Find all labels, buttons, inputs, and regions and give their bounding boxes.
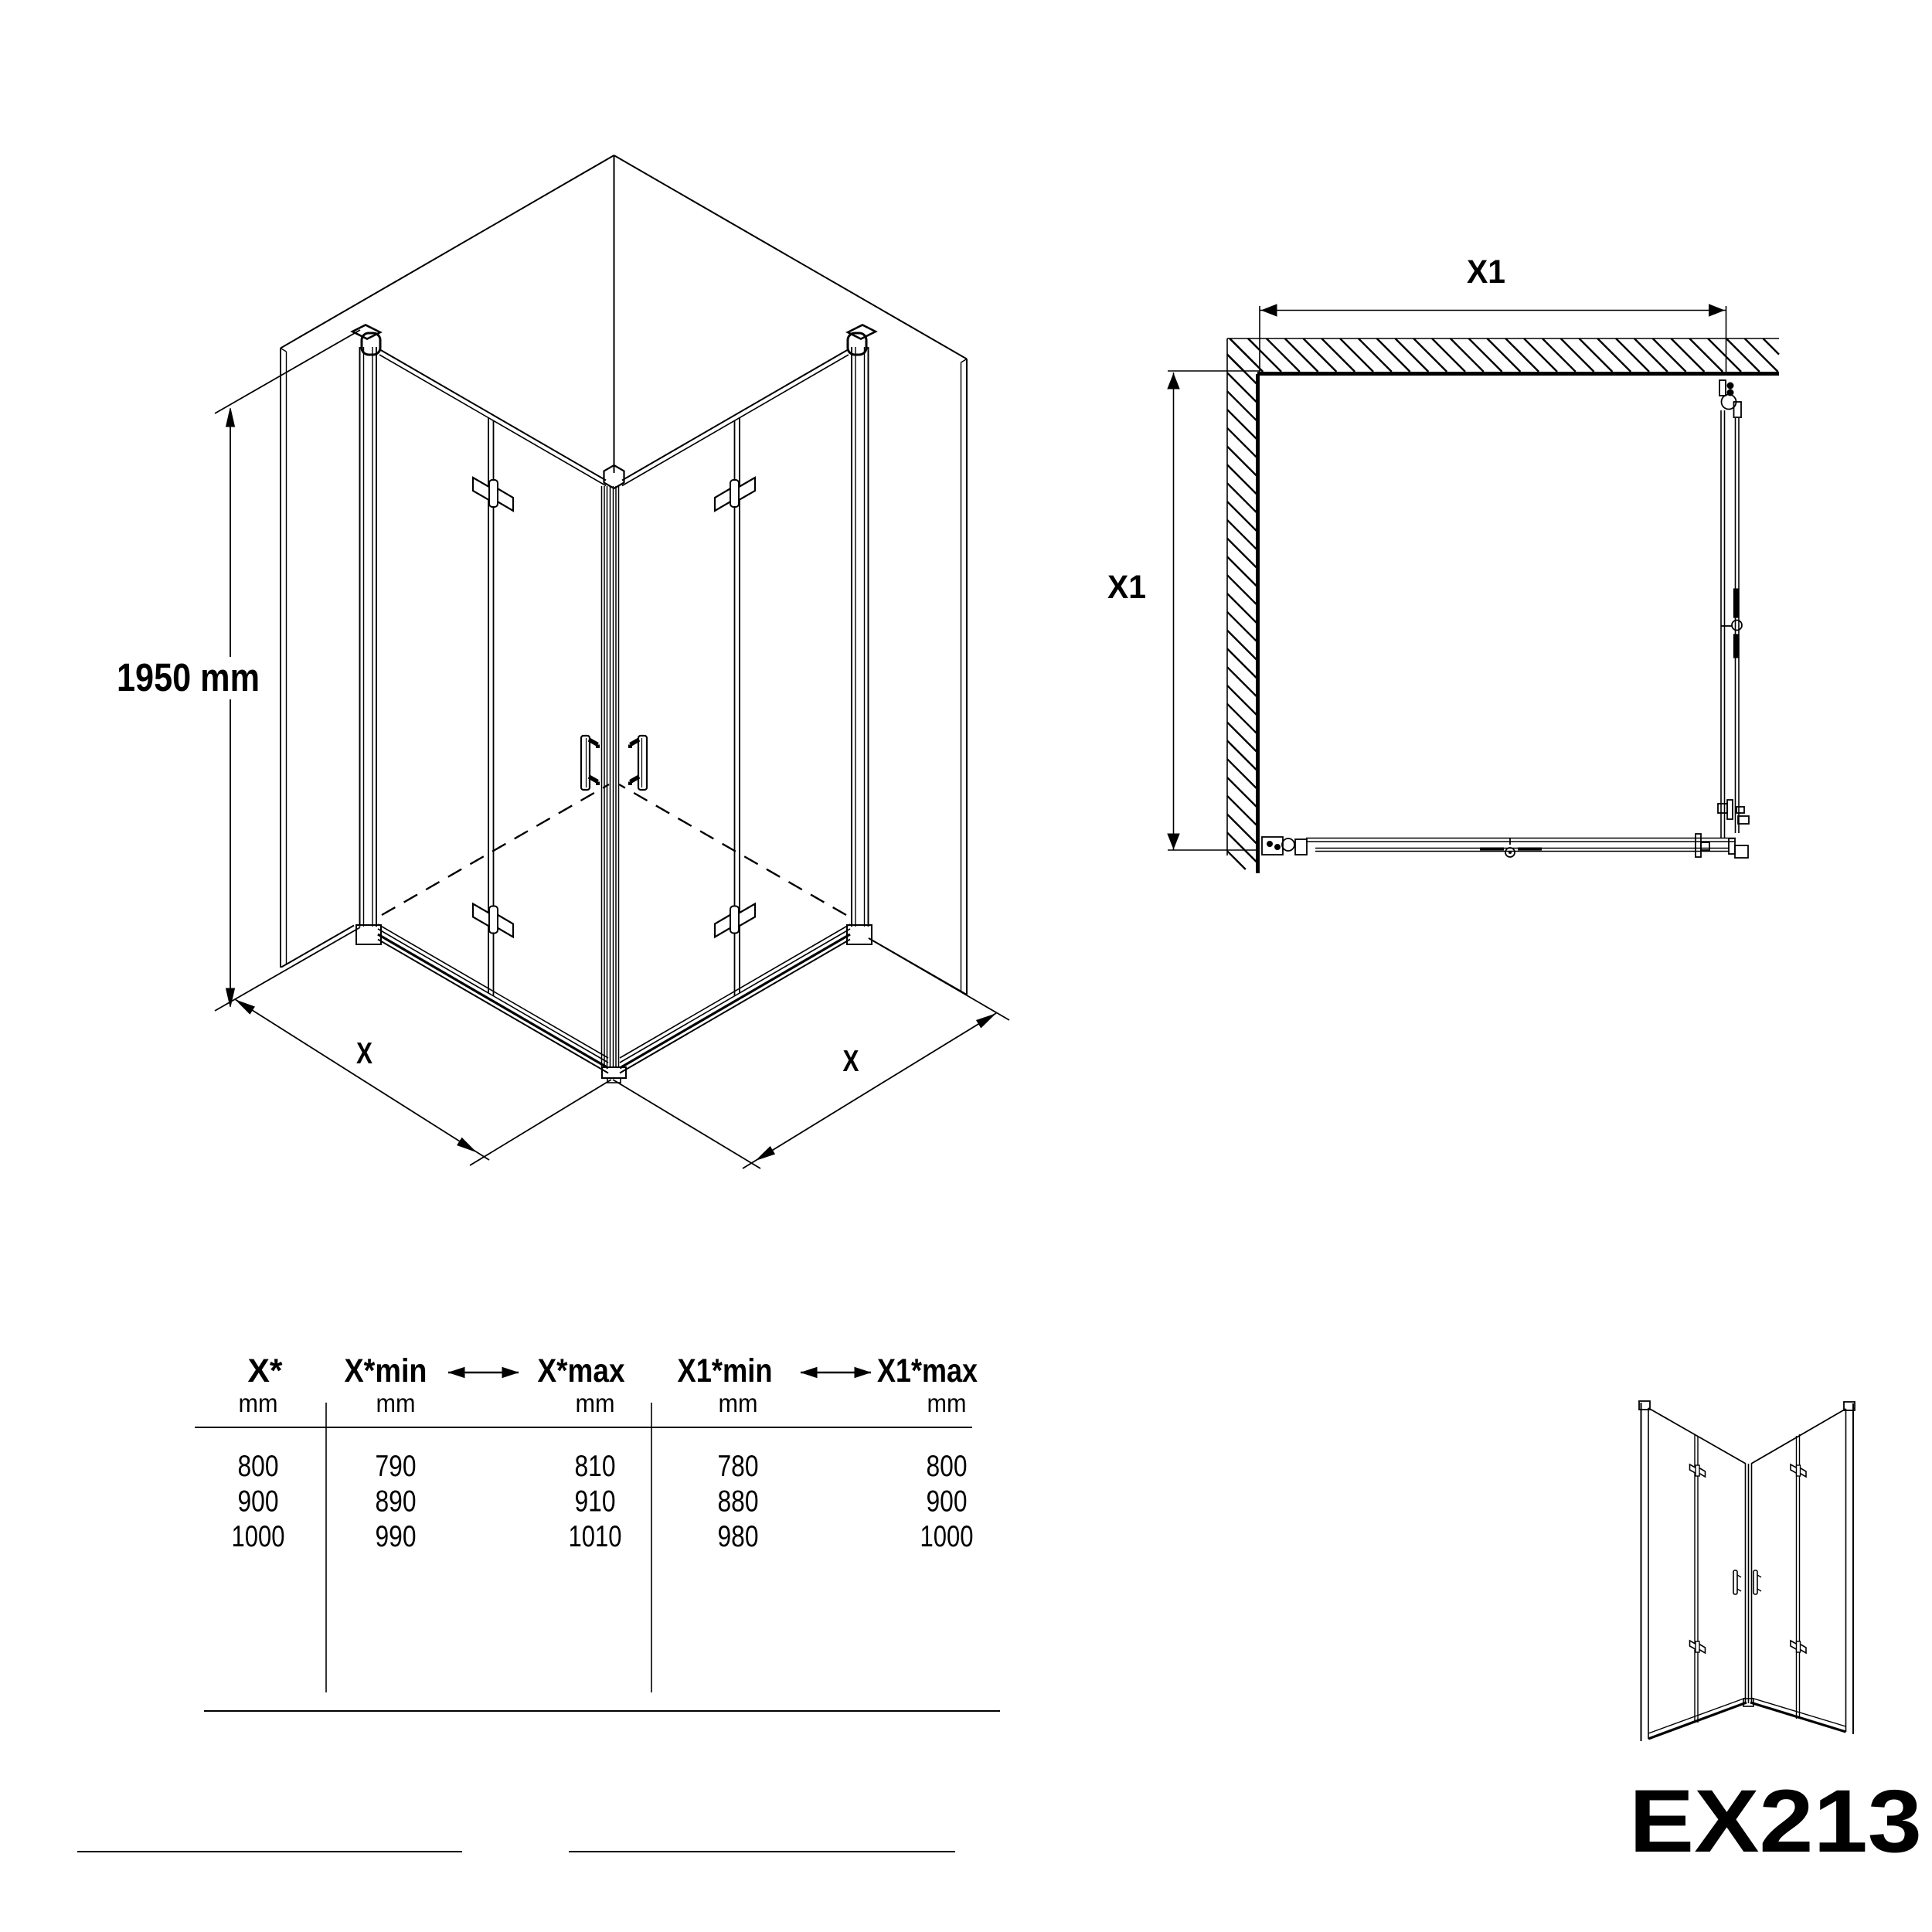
svg-text:1950 mm: 1950 mm <box>117 655 260 699</box>
svg-text:X1*max: X1*max <box>877 1352 978 1389</box>
svg-text:880: 880 <box>718 1485 759 1519</box>
svg-text:980: 980 <box>718 1520 759 1553</box>
svg-text:810: 810 <box>575 1450 616 1483</box>
svg-text:900: 900 <box>927 1485 968 1519</box>
svg-text:X: X <box>356 1037 372 1070</box>
svg-text:990: 990 <box>376 1520 417 1553</box>
svg-text:X1*min: X1*min <box>678 1352 773 1389</box>
svg-text:1000: 1000 <box>920 1520 974 1553</box>
svg-text:EX213: EX213 <box>1629 1772 1922 1871</box>
svg-text:800: 800 <box>927 1450 968 1483</box>
svg-text:900: 900 <box>238 1485 279 1519</box>
svg-text:800: 800 <box>238 1450 279 1483</box>
svg-text:X*: X* <box>248 1352 283 1389</box>
svg-text:X: X <box>843 1045 859 1078</box>
svg-text:780: 780 <box>718 1450 759 1483</box>
svg-text:1010: 1010 <box>569 1520 622 1553</box>
svg-text:890: 890 <box>376 1485 417 1519</box>
svg-text:790: 790 <box>376 1450 417 1483</box>
svg-text:mm: mm <box>576 1389 615 1417</box>
svg-text:mm: mm <box>719 1389 758 1417</box>
svg-text:1000: 1000 <box>232 1520 285 1553</box>
svg-text:mm: mm <box>927 1389 967 1417</box>
svg-text:mm: mm <box>239 1389 278 1417</box>
svg-text:X*min: X*min <box>345 1352 427 1389</box>
svg-text:mm: mm <box>376 1389 416 1417</box>
svg-text:X1: X1 <box>1467 253 1505 291</box>
svg-text:X1: X1 <box>1107 569 1146 606</box>
svg-text:X*max: X*max <box>538 1352 625 1389</box>
svg-text:910: 910 <box>575 1485 616 1519</box>
